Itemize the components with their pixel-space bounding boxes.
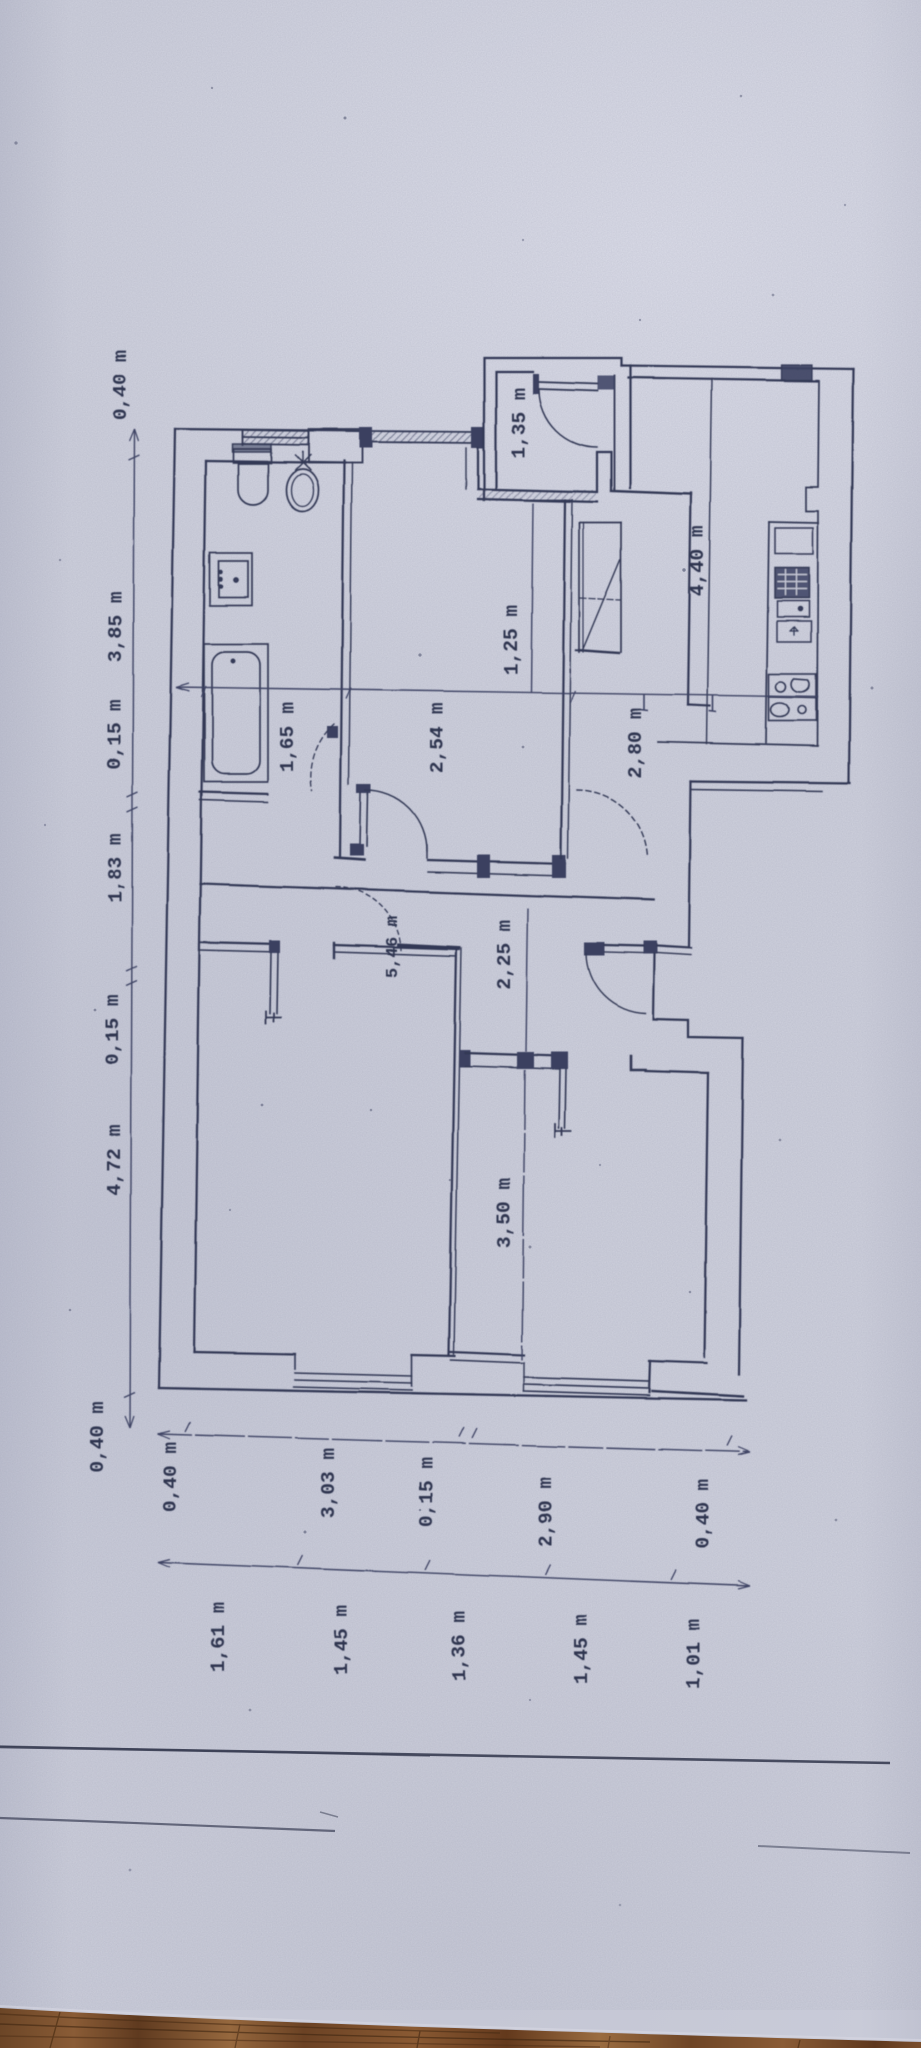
svg-text:2,25 m: 2,25 m — [494, 920, 516, 990]
svg-text:3,50 m: 3,50 m — [494, 1178, 516, 1248]
svg-text:4,72 m: 4,72 m — [104, 1125, 126, 1195]
svg-text:1,65 m: 1,65 m — [277, 702, 299, 772]
svg-text:3,03 m: 3,03 m — [318, 1448, 340, 1518]
svg-text:1,45 m: 1,45 m — [331, 1605, 353, 1675]
svg-text:1,83 m: 1,83 m — [105, 833, 127, 903]
svg-text:4,40 m: 4,40 m — [687, 526, 709, 596]
svg-text:0,40 m: 0,40 m — [110, 350, 132, 420]
svg-text:1,01 m: 1,01 m — [683, 1619, 705, 1689]
svg-text:2,90 m: 2,90 m — [535, 1477, 557, 1547]
svg-text:1,25 m: 1,25 m — [501, 605, 523, 675]
svg-text:5,46 m: 5,46 m — [384, 916, 403, 977]
svg-text:1,35 m: 1,35 m — [509, 388, 531, 458]
svg-text:1,36 m: 1,36 m — [449, 1611, 471, 1681]
svg-text:3,85 m: 3,85 m — [105, 592, 127, 662]
svg-text:1,45 m: 1,45 m — [571, 1614, 593, 1684]
svg-text:0,15 m: 0,15 m — [102, 995, 124, 1065]
svg-text:2,54 m: 2,54 m — [427, 703, 449, 773]
svg-text:0,40 m: 0,40 m — [693, 1479, 715, 1549]
svg-text:0,15 m: 0,15 m — [416, 1457, 438, 1527]
svg-text:2,80 m: 2,80 m — [625, 708, 647, 778]
svg-text:1,61 m: 1,61 m — [208, 1602, 230, 1672]
svg-text:0,15 m: 0,15 m — [104, 699, 126, 769]
svg-text:0,40 m: 0,40 m — [160, 1442, 182, 1512]
svg-text:0,40 m: 0,40 m — [87, 1402, 109, 1472]
